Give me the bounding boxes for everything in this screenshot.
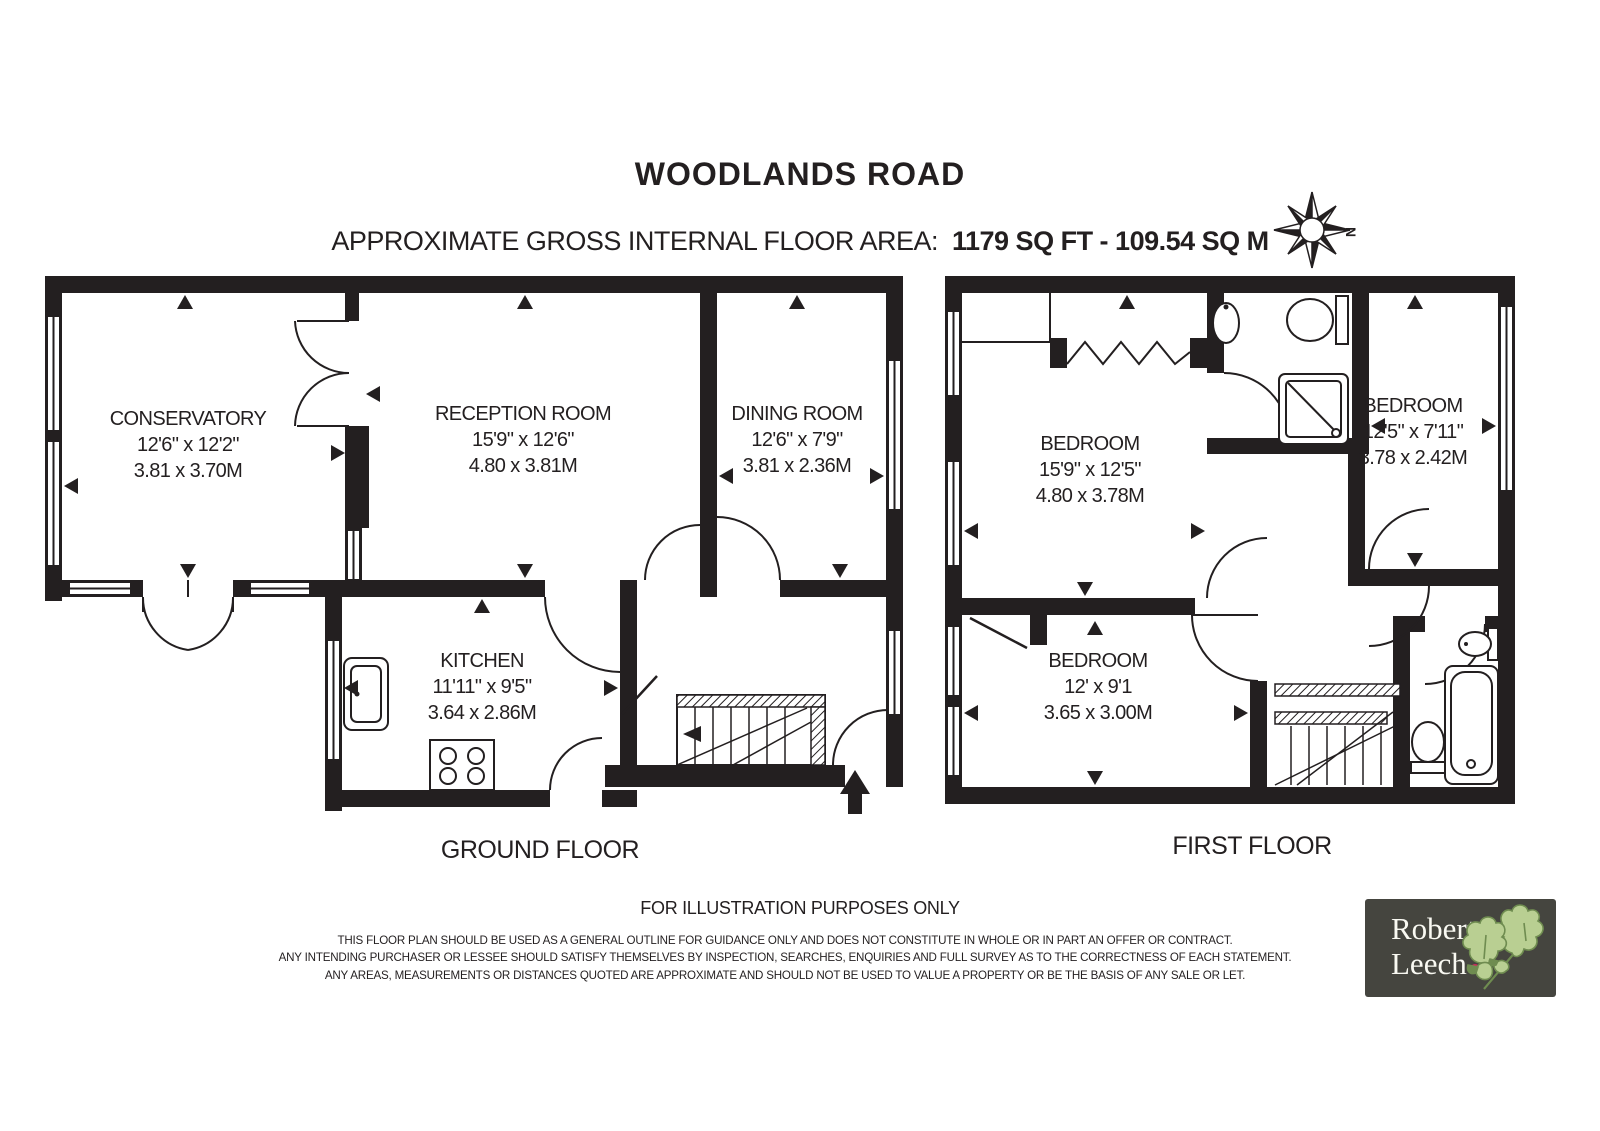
toilet-icon xyxy=(1287,296,1348,344)
room-name: BEDROOM xyxy=(1036,431,1144,457)
room-name: BEDROOM xyxy=(1359,393,1467,419)
room-size-imperial: 12'6" x 7'9" xyxy=(731,427,862,453)
room-name: DINING ROOM xyxy=(731,401,862,427)
dimension-markers xyxy=(64,295,884,696)
room-name: KITCHEN xyxy=(428,648,536,674)
illustration-note: FOR ILLUSTRATION PURPOSES ONLY xyxy=(0,898,1600,919)
room-label-dining: DINING ROOM 12'6" x 7'9" 3.81 x 2.36M xyxy=(731,401,862,479)
disclaimer-line-2: ANY INTENDING PURCHASER OR LESSEE SHOULD… xyxy=(0,949,1570,966)
room-name: CONSERVATORY xyxy=(110,406,267,432)
room-size-metric: 4.80 x 3.81M xyxy=(435,453,611,479)
room-label-reception: RECEPTION ROOM 15'9" x 12'6" 4.80 x 3.81… xyxy=(435,401,611,479)
room-label-bedroom-2: BEDROOM 12'5" x 7'11" 3.78 x 2.42M xyxy=(1359,393,1467,471)
room-size-imperial: 11'11" x 9'5" xyxy=(428,674,536,700)
floorplan-page: WOODLANDS ROAD APPROXIMATE GROSS INTERNA… xyxy=(0,0,1600,1131)
disclaimer-line-1: THIS FLOOR PLAN SHOULD BE USED AS A GENE… xyxy=(0,932,1570,949)
first-floor-windows xyxy=(947,306,1513,776)
room-size-metric: 3.78 x 2.42M xyxy=(1359,445,1467,471)
bathroom-basin-icon xyxy=(1213,303,1239,343)
floor-area-value: 1179 SQ FT - 109.54 SQ M xyxy=(952,226,1269,256)
staircase xyxy=(677,695,825,765)
room-size-metric: 3.81 x 3.70M xyxy=(110,458,267,484)
room-size-imperial: 12'5" x 7'11" xyxy=(1359,419,1467,445)
room-label-bedroom-1: BEDROOM 15'9" x 12'5" 4.80 x 3.78M xyxy=(1036,431,1144,509)
floor-area-label: APPROXIMATE GROSS INTERNAL FLOOR AREA: xyxy=(331,226,938,256)
room-label-conservatory: CONSERVATORY 12'6" x 12'2" 3.81 x 3.70M xyxy=(110,406,267,484)
room-size-imperial: 12'6" x 12'2" xyxy=(110,432,267,458)
first-floor-label: FIRST FLOOR xyxy=(1172,832,1331,861)
ground-floor-label: GROUND FLOOR xyxy=(441,836,639,865)
disclaimer-text: THIS FLOOR PLAN SHOULD BE USED AS A GENE… xyxy=(0,932,1570,984)
floor-area-line: APPROXIMATE GROSS INTERNAL FLOOR AREA:11… xyxy=(0,226,1600,257)
ensuite-basin-icon xyxy=(1459,628,1498,660)
room-label-bedroom-3: BEDROOM 12' x 9'1 3.65 x 3.00M xyxy=(1044,648,1152,726)
wardrobe xyxy=(962,293,1190,364)
disclaimer-line-3: ANY AREAS, MEASUREMENTS OR DISTANCES QUO… xyxy=(0,967,1570,984)
staircase xyxy=(1275,684,1400,785)
first-floor-plan xyxy=(945,276,1515,821)
hob-icon xyxy=(430,740,494,790)
room-size-metric: 3.64 x 2.86M xyxy=(428,700,536,726)
kitchen-sink-icon xyxy=(344,658,388,730)
oak-leaves-icon xyxy=(1454,901,1554,995)
page-title: WOODLANDS ROAD xyxy=(0,156,1600,193)
shower-icon xyxy=(1279,374,1348,444)
room-name: RECEPTION ROOM xyxy=(435,401,611,427)
ground-floor-plan xyxy=(45,276,905,821)
room-name: BEDROOM xyxy=(1044,648,1152,674)
room-size-imperial: 12' x 9'1 xyxy=(1044,674,1152,700)
ensuite-toilet-icon xyxy=(1411,722,1445,773)
bathtub-icon xyxy=(1445,666,1498,784)
room-size-metric: 4.80 x 3.78M xyxy=(1036,483,1144,509)
room-size-metric: 3.81 x 2.36M xyxy=(731,453,862,479)
room-size-imperial: 15'9" x 12'6" xyxy=(435,427,611,453)
room-size-imperial: 15'9" x 12'5" xyxy=(1036,457,1144,483)
compass-north-label: N xyxy=(1343,227,1359,237)
room-label-kitchen: KITCHEN 11'11" x 9'5" 3.64 x 2.86M xyxy=(428,648,536,726)
room-size-metric: 3.65 x 3.00M xyxy=(1044,700,1152,726)
agent-logo: Robert Leech xyxy=(1365,899,1556,997)
